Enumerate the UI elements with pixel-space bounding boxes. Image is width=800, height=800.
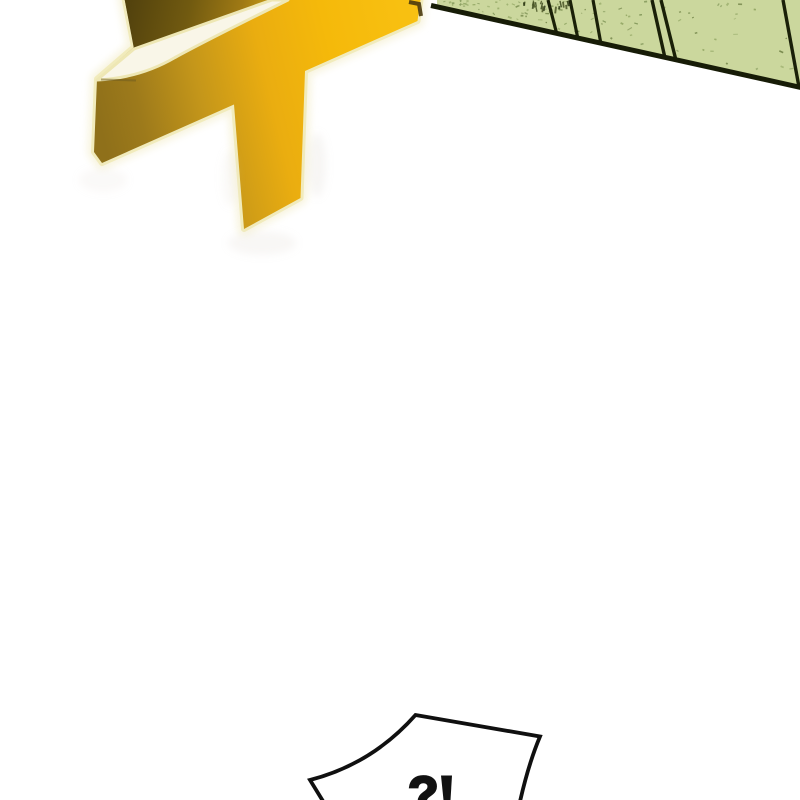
svg-text:?: ? <box>408 767 439 800</box>
